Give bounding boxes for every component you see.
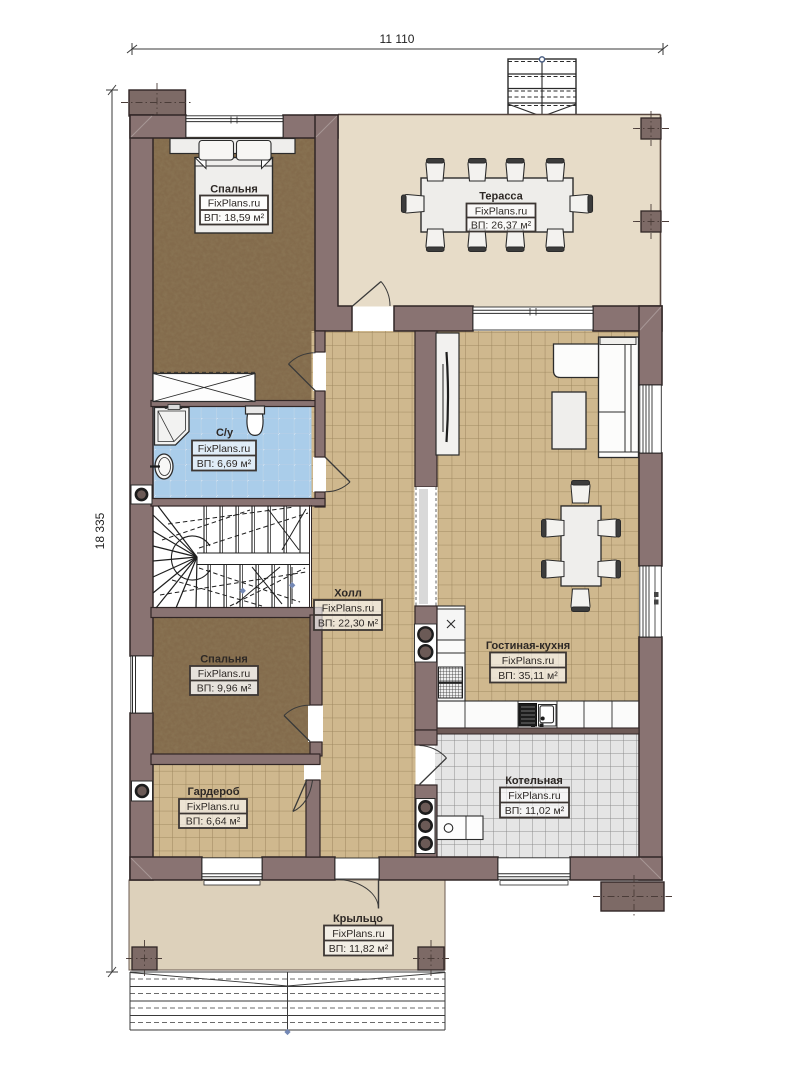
svg-text:11 110: 11 110 [380, 32, 415, 46]
svg-text:FixPlans.ru: FixPlans.ru [475, 206, 528, 218]
svg-text:ВП: 22,30 м²: ВП: 22,30 м² [318, 618, 379, 630]
svg-text:FixPlans.ru: FixPlans.ru [208, 198, 261, 210]
svg-text:Крыльцо: Крыльцо [333, 913, 383, 925]
svg-text:18 335: 18 335 [93, 512, 107, 549]
svg-text:FixPlans.ru: FixPlans.ru [322, 603, 375, 615]
svg-text:Терасса: Терасса [479, 191, 523, 203]
svg-text:Гардероб: Гардероб [188, 786, 240, 798]
svg-text:ВП: 9,96 м²: ВП: 9,96 м² [197, 683, 252, 695]
svg-text:FixPlans.ru: FixPlans.ru [332, 928, 385, 940]
svg-text:ВП: 26,37 м²: ВП: 26,37 м² [471, 220, 532, 232]
svg-text:ВП: 11,02 м²: ВП: 11,02 м² [505, 805, 565, 817]
svg-text:FixPlans.ru: FixPlans.ru [198, 668, 251, 680]
svg-text:FixPlans.ru: FixPlans.ru [508, 790, 561, 802]
svg-text:С/у: С/у [216, 427, 234, 439]
svg-text:Спальня: Спальня [200, 654, 248, 666]
svg-text:ВП: 35,11 м²: ВП: 35,11 м² [498, 670, 558, 682]
svg-text:Спальня: Спальня [210, 184, 258, 196]
svg-text:FixPlans.ru: FixPlans.ru [198, 443, 251, 455]
svg-text:ВП: 6,69 м²: ВП: 6,69 м² [197, 458, 252, 470]
svg-text:Гостиная-кухня: Гостиная-кухня [486, 640, 570, 652]
svg-text:ВП: 11,82 м²: ВП: 11,82 м² [329, 943, 389, 955]
svg-text:Холл: Холл [334, 588, 362, 600]
svg-text:Котельная: Котельная [505, 775, 563, 787]
svg-text:FixPlans.ru: FixPlans.ru [502, 655, 555, 667]
svg-text:ВП: 18,59 м²: ВП: 18,59 м² [204, 212, 265, 224]
svg-text:ВП: 6,64 м²: ВП: 6,64 м² [186, 816, 241, 828]
svg-text:FixPlans.ru: FixPlans.ru [187, 801, 240, 813]
